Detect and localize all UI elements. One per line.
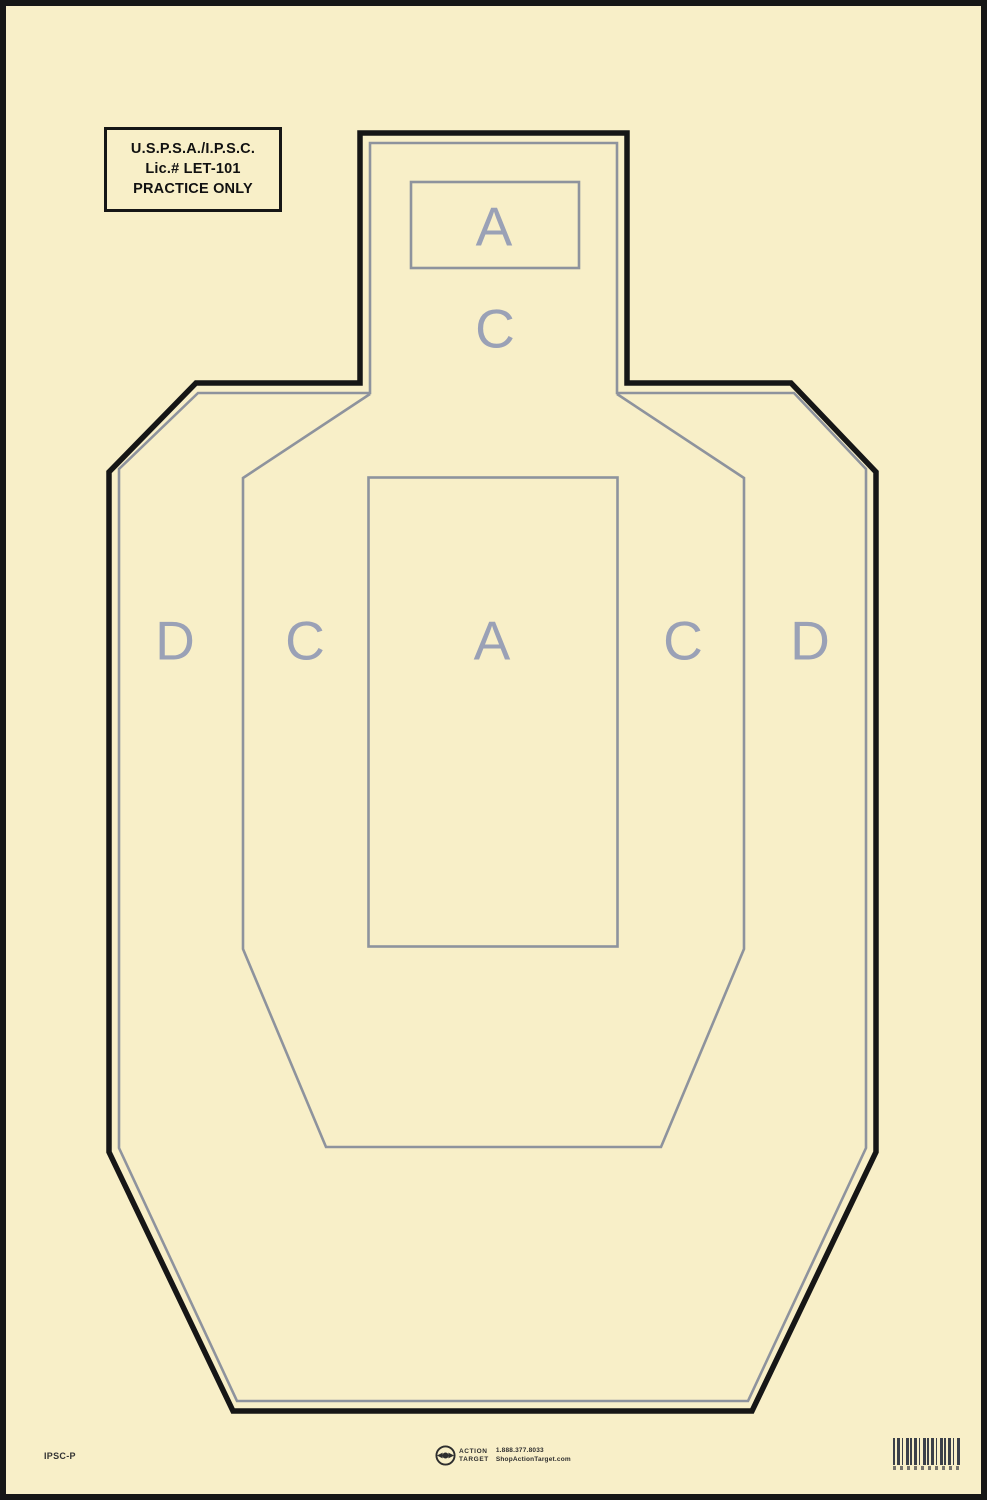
body-d-zone-right-label: D [790,614,830,669]
manufacturer-name-line2: TARGET [459,1456,489,1463]
body-d-zone-left-label: D [155,614,195,669]
license-org-line: U.S.P.S.A./I.P.S.C. [131,140,255,159]
target-model-number: IPSC-P [44,1451,76,1461]
manufacturer-contact: 1.888.377.8033 ShopActionTarget.com [496,1447,571,1463]
body-a-zone-label: A [474,614,511,669]
a-zone-outline [369,478,618,947]
head-a-zone-label: A [476,200,513,255]
body-c-zone-left-label: C [285,614,325,669]
manufacturer-name-line1: ACTION [459,1448,489,1455]
c-zone-outline [243,394,744,1147]
body-c-zone-right-label: C [663,614,703,669]
license-number-line: Lic.# LET-101 [145,160,240,179]
barcode [893,1438,961,1465]
barcode-digits [893,1466,961,1470]
manufacturer-block: ACTION TARGET 1.888.377.8033 ShopActionT… [435,1445,571,1466]
manufacturer-phone: 1.888.377.8033 [496,1447,571,1455]
head-c-zone-label: C [475,302,515,357]
manufacturer-website: ShopActionTarget.com [496,1456,571,1464]
target-sheet: U.S.P.S.A./I.P.S.C. Lic.# LET-101 PRACTI… [0,0,987,1500]
license-box: U.S.P.S.A./I.P.S.C. Lic.# LET-101 PRACTI… [104,127,282,212]
manufacturer-name: ACTION TARGET [459,1448,489,1463]
practice-only-line: PRACTICE ONLY [133,180,253,199]
action-target-logo-icon [435,1445,456,1466]
